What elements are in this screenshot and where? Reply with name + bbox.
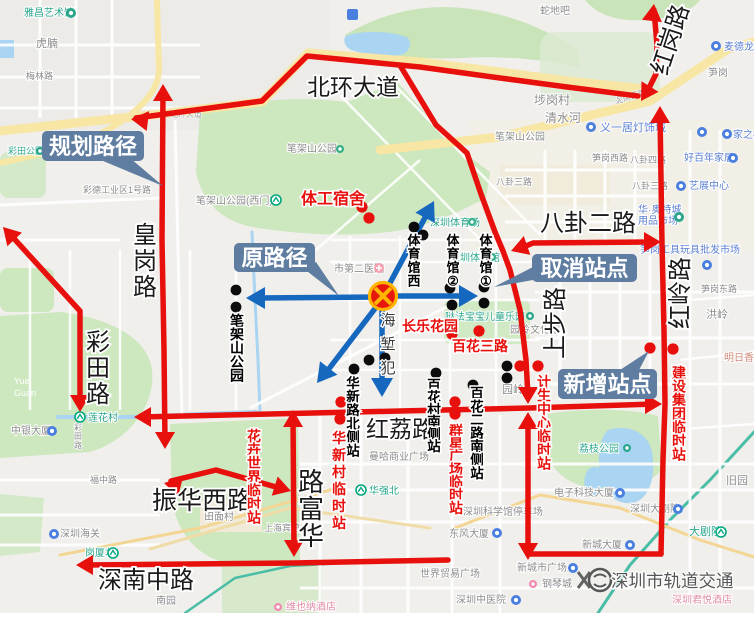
svg-text:明日香: 明日香 bbox=[724, 352, 754, 364]
svg-text:荔枝公园: 荔枝公园 bbox=[579, 442, 619, 455]
svg-text:曼哈商业广场: 曼哈商业广场 bbox=[369, 450, 429, 463]
svg-text:八卦二路: 八卦二路 bbox=[540, 210, 636, 237]
svg-text:华强北: 华强北 bbox=[369, 484, 399, 497]
svg-text:园: 园 bbox=[230, 367, 244, 383]
svg-text:笋岗: 笋岗 bbox=[708, 66, 728, 79]
svg-text:彩德工业区1号路: 彩德工业区1号路 bbox=[83, 184, 151, 195]
svg-text:路: 路 bbox=[86, 381, 110, 408]
svg-text:②: ② bbox=[447, 274, 459, 289]
svg-text:笋岗东路: 笋岗东路 bbox=[701, 283, 737, 294]
svg-text:深圳市轨道交通: 深圳市轨道交通 bbox=[611, 571, 734, 591]
svg-text:原路径: 原路径 bbox=[241, 245, 307, 270]
svg-text:取消站点: 取消站点 bbox=[540, 256, 628, 281]
svg-text:电子科技大厦: 电子科技大厦 bbox=[554, 486, 614, 499]
svg-text:海: 海 bbox=[380, 312, 395, 329]
svg-text:路: 路 bbox=[298, 467, 324, 497]
svg-text:洪岭: 洪岭 bbox=[706, 307, 728, 321]
svg-text:好百年家居: 好百年家居 bbox=[684, 151, 734, 164]
svg-text:华: 华 bbox=[332, 430, 346, 446]
svg-text:东风大厦: 东风大厦 bbox=[449, 527, 489, 540]
svg-text:用品市场: 用品市场 bbox=[638, 214, 678, 227]
svg-text:彩: 彩 bbox=[74, 422, 82, 432]
svg-text:莲花村: 莲花村 bbox=[88, 411, 118, 424]
svg-text:八卦三路: 八卦三路 bbox=[496, 176, 532, 187]
svg-text:西: 西 bbox=[407, 274, 420, 289]
svg-text:富: 富 bbox=[298, 494, 324, 524]
svg-text:彩: 彩 bbox=[86, 329, 110, 356]
svg-text:新城大厦: 新城大厦 bbox=[582, 538, 622, 551]
svg-text:临: 临 bbox=[332, 481, 346, 497]
svg-text:站: 站 bbox=[247, 510, 261, 526]
svg-text:维也纳酒店: 维也纳酒店 bbox=[286, 600, 336, 613]
svg-text:新城市广场: 新城市广场 bbox=[517, 561, 567, 574]
svg-text:上步路: 上步路 bbox=[542, 287, 569, 359]
svg-text:站: 站 bbox=[449, 500, 463, 516]
svg-text:规划路径: 规划路径 bbox=[49, 134, 137, 159]
svg-text:岗: 岗 bbox=[133, 248, 157, 275]
svg-text:①: ① bbox=[480, 274, 492, 289]
svg-text:皇: 皇 bbox=[133, 222, 157, 249]
svg-text:钢琴城: 钢琴城 bbox=[542, 577, 572, 590]
svg-text:犯: 犯 bbox=[380, 360, 395, 377]
svg-text:深圳海关: 深圳海关 bbox=[60, 527, 100, 540]
svg-text:红荔路: 红荔路 bbox=[366, 416, 435, 442]
svg-text:百花三路: 百花三路 bbox=[452, 338, 509, 354]
svg-text:田: 田 bbox=[86, 355, 110, 382]
svg-text:新增站点: 新增站点 bbox=[563, 372, 651, 397]
svg-text:旧园: 旧园 bbox=[726, 474, 748, 487]
svg-text:世界贸易广场: 世界贸易广场 bbox=[420, 567, 480, 580]
svg-text:堑: 堑 bbox=[380, 336, 395, 353]
svg-text:华: 华 bbox=[298, 521, 324, 551]
svg-text:深圳中医院: 深圳中医院 bbox=[456, 593, 506, 606]
svg-text:深南中路: 深南中路 bbox=[98, 567, 194, 594]
svg-text:笔架山公园(西门): 笔架山公园(西门) bbox=[196, 194, 273, 207]
svg-text:站: 站 bbox=[332, 515, 346, 531]
svg-text:路: 路 bbox=[74, 440, 82, 450]
svg-text:深圳科学馆停车场: 深圳科学馆停车场 bbox=[463, 505, 543, 518]
svg-text:振华西路: 振华西路 bbox=[152, 487, 252, 515]
svg-text:清水河: 清水河 bbox=[545, 111, 581, 125]
svg-text:路: 路 bbox=[133, 274, 157, 301]
svg-text:蛇地吧: 蛇地吧 bbox=[540, 4, 570, 17]
svg-text:村: 村 bbox=[332, 464, 346, 480]
svg-text:艺展中心: 艺展中心 bbox=[689, 179, 729, 192]
svg-text:麦德龙: 麦德龙 bbox=[724, 40, 754, 53]
svg-text:笔架山公园: 笔架山公园 bbox=[495, 130, 545, 143]
svg-text:田: 田 bbox=[74, 432, 82, 441]
svg-text:站: 站 bbox=[346, 443, 360, 459]
svg-text:笔架山公园: 笔架山公园 bbox=[287, 142, 337, 155]
svg-text:北环大道: 北环大道 bbox=[307, 74, 399, 100]
svg-text:站: 站 bbox=[537, 456, 551, 472]
svg-text:体工宿舍: 体工宿舍 bbox=[301, 189, 366, 208]
svg-text:深圳大剧院: 深圳大剧院 bbox=[630, 502, 680, 515]
svg-text:Guan: Guan bbox=[14, 388, 36, 398]
svg-text:福中路: 福中路 bbox=[90, 474, 117, 485]
svg-text:站: 站 bbox=[470, 465, 484, 481]
svg-text:家之福: 家之福 bbox=[733, 128, 754, 141]
svg-text:笋岗西路: 笋岗西路 bbox=[592, 152, 628, 163]
svg-text:站: 站 bbox=[427, 438, 441, 454]
svg-text:中银大厦: 中银大厦 bbox=[11, 424, 51, 437]
svg-text:南园: 南园 bbox=[156, 594, 176, 607]
svg-text:虎腩: 虎腩 bbox=[36, 36, 58, 50]
svg-text:埗岗村: 埗岗村 bbox=[534, 93, 570, 107]
svg-text:红岭路: 红岭路 bbox=[667, 257, 694, 329]
svg-text:站: 站 bbox=[672, 447, 686, 463]
svg-text:新: 新 bbox=[332, 447, 346, 463]
svg-text:时: 时 bbox=[332, 498, 346, 514]
svg-text:长乐花园: 长乐花园 bbox=[402, 318, 458, 334]
svg-text:Yue: Yue bbox=[14, 376, 30, 386]
svg-text:深圳君悦酒店: 深圳君悦酒店 bbox=[672, 593, 732, 606]
svg-text:梅林路: 梅林路 bbox=[26, 70, 53, 81]
